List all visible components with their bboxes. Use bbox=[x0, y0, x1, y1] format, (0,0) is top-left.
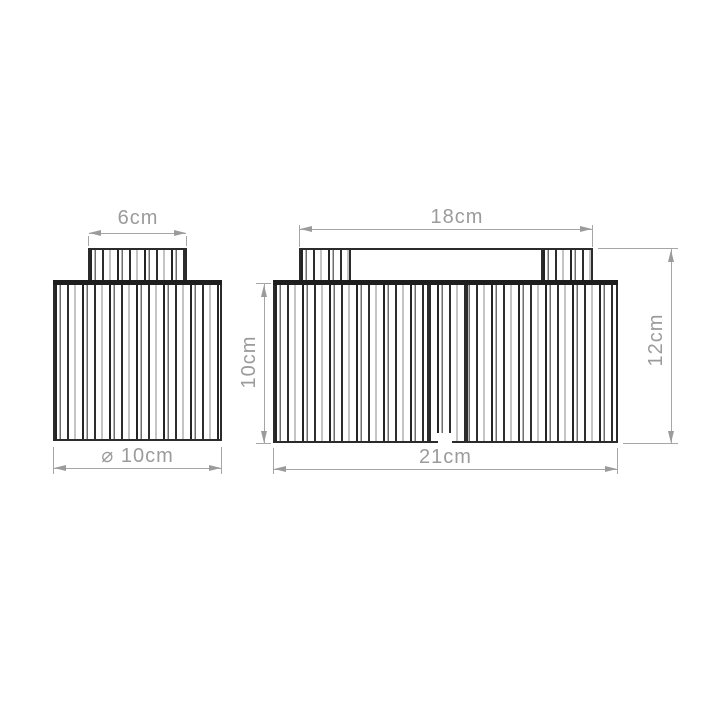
dimension-line bbox=[264, 284, 265, 443]
dimension-label: 6cm bbox=[68, 207, 208, 229]
dimension-label: 12cm bbox=[646, 314, 666, 367]
arrowhead-right bbox=[174, 230, 186, 236]
extension-line bbox=[592, 225, 593, 247]
dimension-line bbox=[274, 469, 618, 470]
left-fixture-shade-body bbox=[53, 285, 222, 441]
arrowhead-down bbox=[668, 431, 674, 443]
dimension-label: ⌀ 10cm bbox=[53, 445, 222, 467]
dimension-label: 18cm bbox=[307, 206, 607, 228]
right-canopy-right-ribs bbox=[541, 250, 593, 282]
right-shade-bottom-edge-left bbox=[273, 441, 438, 444]
dimension-line bbox=[54, 468, 221, 469]
right-fixture-canopy bbox=[299, 248, 593, 280]
right-shade-center-gap bbox=[437, 433, 452, 443]
extension-line bbox=[186, 236, 187, 246]
right-fixture-shade-body bbox=[273, 285, 618, 443]
dimension-label: 10cm bbox=[239, 336, 259, 389]
left-fixture-top-gallery bbox=[88, 248, 187, 281]
extension-line bbox=[598, 248, 678, 249]
extension-line bbox=[256, 443, 271, 444]
arrowhead-down bbox=[261, 431, 267, 443]
arrowhead-up bbox=[261, 285, 267, 297]
arrowhead-left bbox=[89, 230, 101, 236]
right-canopy-left-ribs bbox=[299, 250, 351, 282]
right-shade-bottom-edge-right bbox=[452, 441, 618, 444]
extension-line bbox=[623, 443, 678, 444]
dimension-line bbox=[89, 233, 186, 234]
dimension-line bbox=[300, 229, 592, 230]
arrowhead-up bbox=[668, 250, 674, 262]
dimension-diagram: 6cm ⌀ 10cm 18cm 10cm 12cm bbox=[0, 0, 720, 720]
dimension-label: 21cm bbox=[273, 446, 618, 468]
dimension-line bbox=[671, 249, 672, 443]
right-shade-tangent-left bbox=[427, 285, 431, 441]
right-shade-tangent-right bbox=[464, 285, 468, 441]
extension-line bbox=[88, 236, 89, 246]
